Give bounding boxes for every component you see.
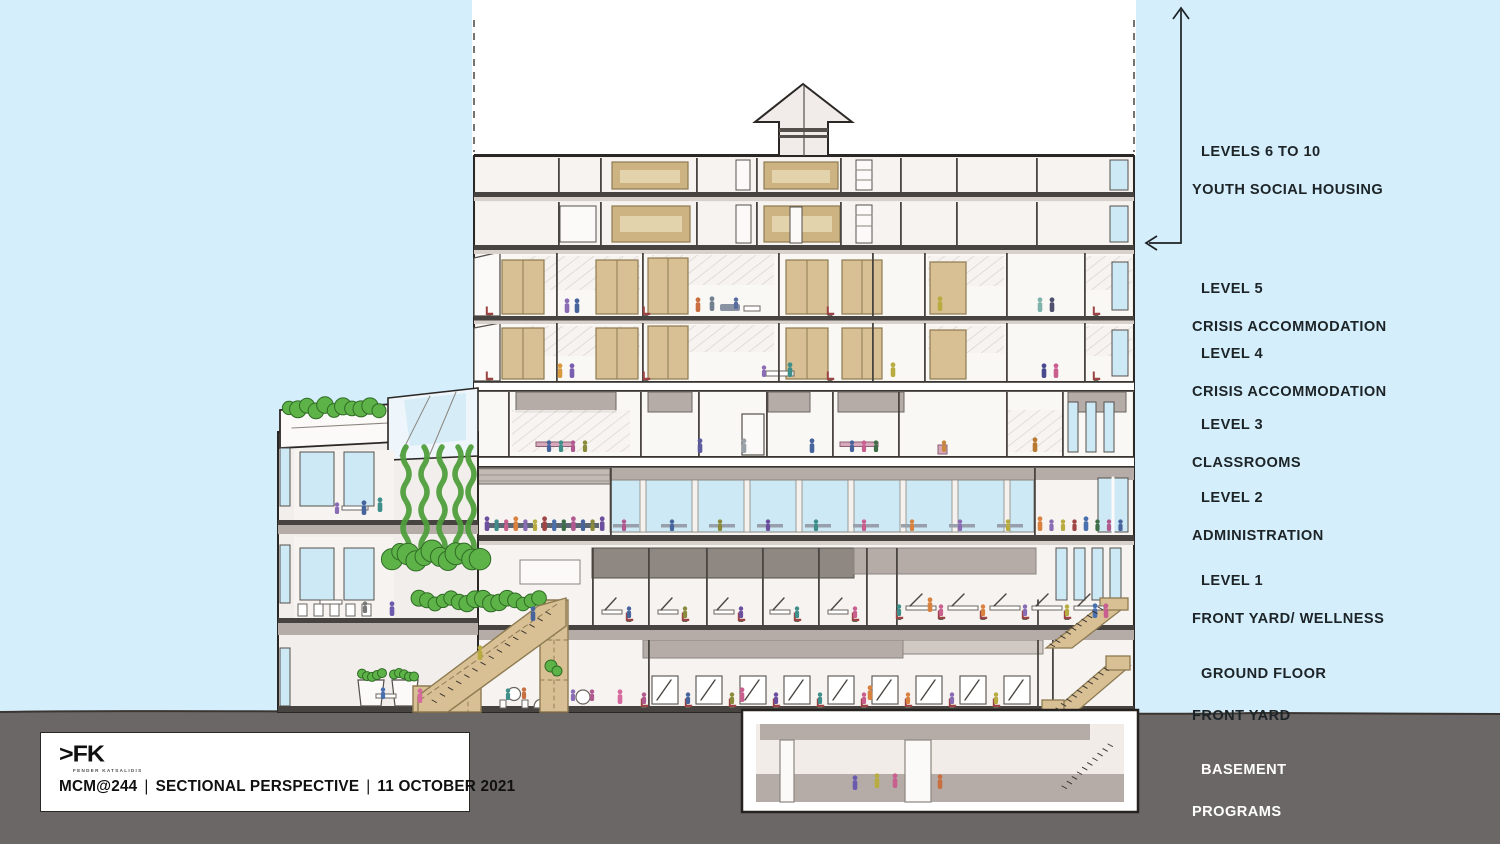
level-title: LEVELS 6 TO 10 <box>1201 144 1321 160</box>
level1-floor <box>476 545 1132 625</box>
title-block: >FK FENDER KATSALIDIS MCM@244|SECTIONAL … <box>40 732 470 812</box>
level-program: FRONT YARD <box>1192 706 1326 727</box>
level-title: BASEMENT <box>1201 762 1287 778</box>
level-program: PROGRAMS <box>1192 802 1287 823</box>
separator: | <box>366 778 370 795</box>
level-title: GROUND FLOOR <box>1201 666 1326 682</box>
label-ground-floor: GROUND FLOOR FRONT YARD <box>1192 643 1326 748</box>
firm-name: FENDER KATSALIDIS <box>73 768 469 773</box>
sheet-title-line: MCM@244|SECTIONAL PERSPECTIVE|11 OCTOBER… <box>59 778 469 796</box>
label-level-1: LEVEL 1 FRONT YARD/ WELLNESS <box>1192 553 1384 648</box>
level-title: LEVEL 4 <box>1201 346 1263 362</box>
sectional-perspective-slide: LEVELS 6 TO 10 YOUTH SOCIAL HOUSING LEVE… <box>0 0 1500 844</box>
level-title: LEVEL 1 <box>1201 573 1263 589</box>
level-title: LEVEL 2 <box>1201 490 1263 506</box>
level-program: ADMINISTRATION <box>1192 527 1324 546</box>
level-program: FRONT YARD/ WELLNESS <box>1192 610 1384 629</box>
project-code: MCM@244 <box>59 778 137 795</box>
level-title: LEVEL 5 <box>1201 281 1263 297</box>
level-title: LEVEL 3 <box>1201 417 1263 433</box>
label-levels-6-10: LEVELS 6 TO 10 YOUTH SOCIAL HOUSING <box>1192 124 1383 219</box>
level-program: YOUTH SOCIAL HOUSING <box>1192 181 1383 200</box>
separator: | <box>144 778 148 795</box>
basement-box <box>742 710 1138 812</box>
fk-logo: >FK <box>59 744 104 764</box>
drawing-date: 11 OCTOBER 2021 <box>377 778 515 795</box>
drawing-title: SECTIONAL PERSPECTIVE <box>156 778 360 795</box>
label-level-2: LEVEL 2 ADMINISTRATION <box>1192 470 1324 565</box>
label-basement: BASEMENT PROGRAMS <box>1192 739 1287 844</box>
